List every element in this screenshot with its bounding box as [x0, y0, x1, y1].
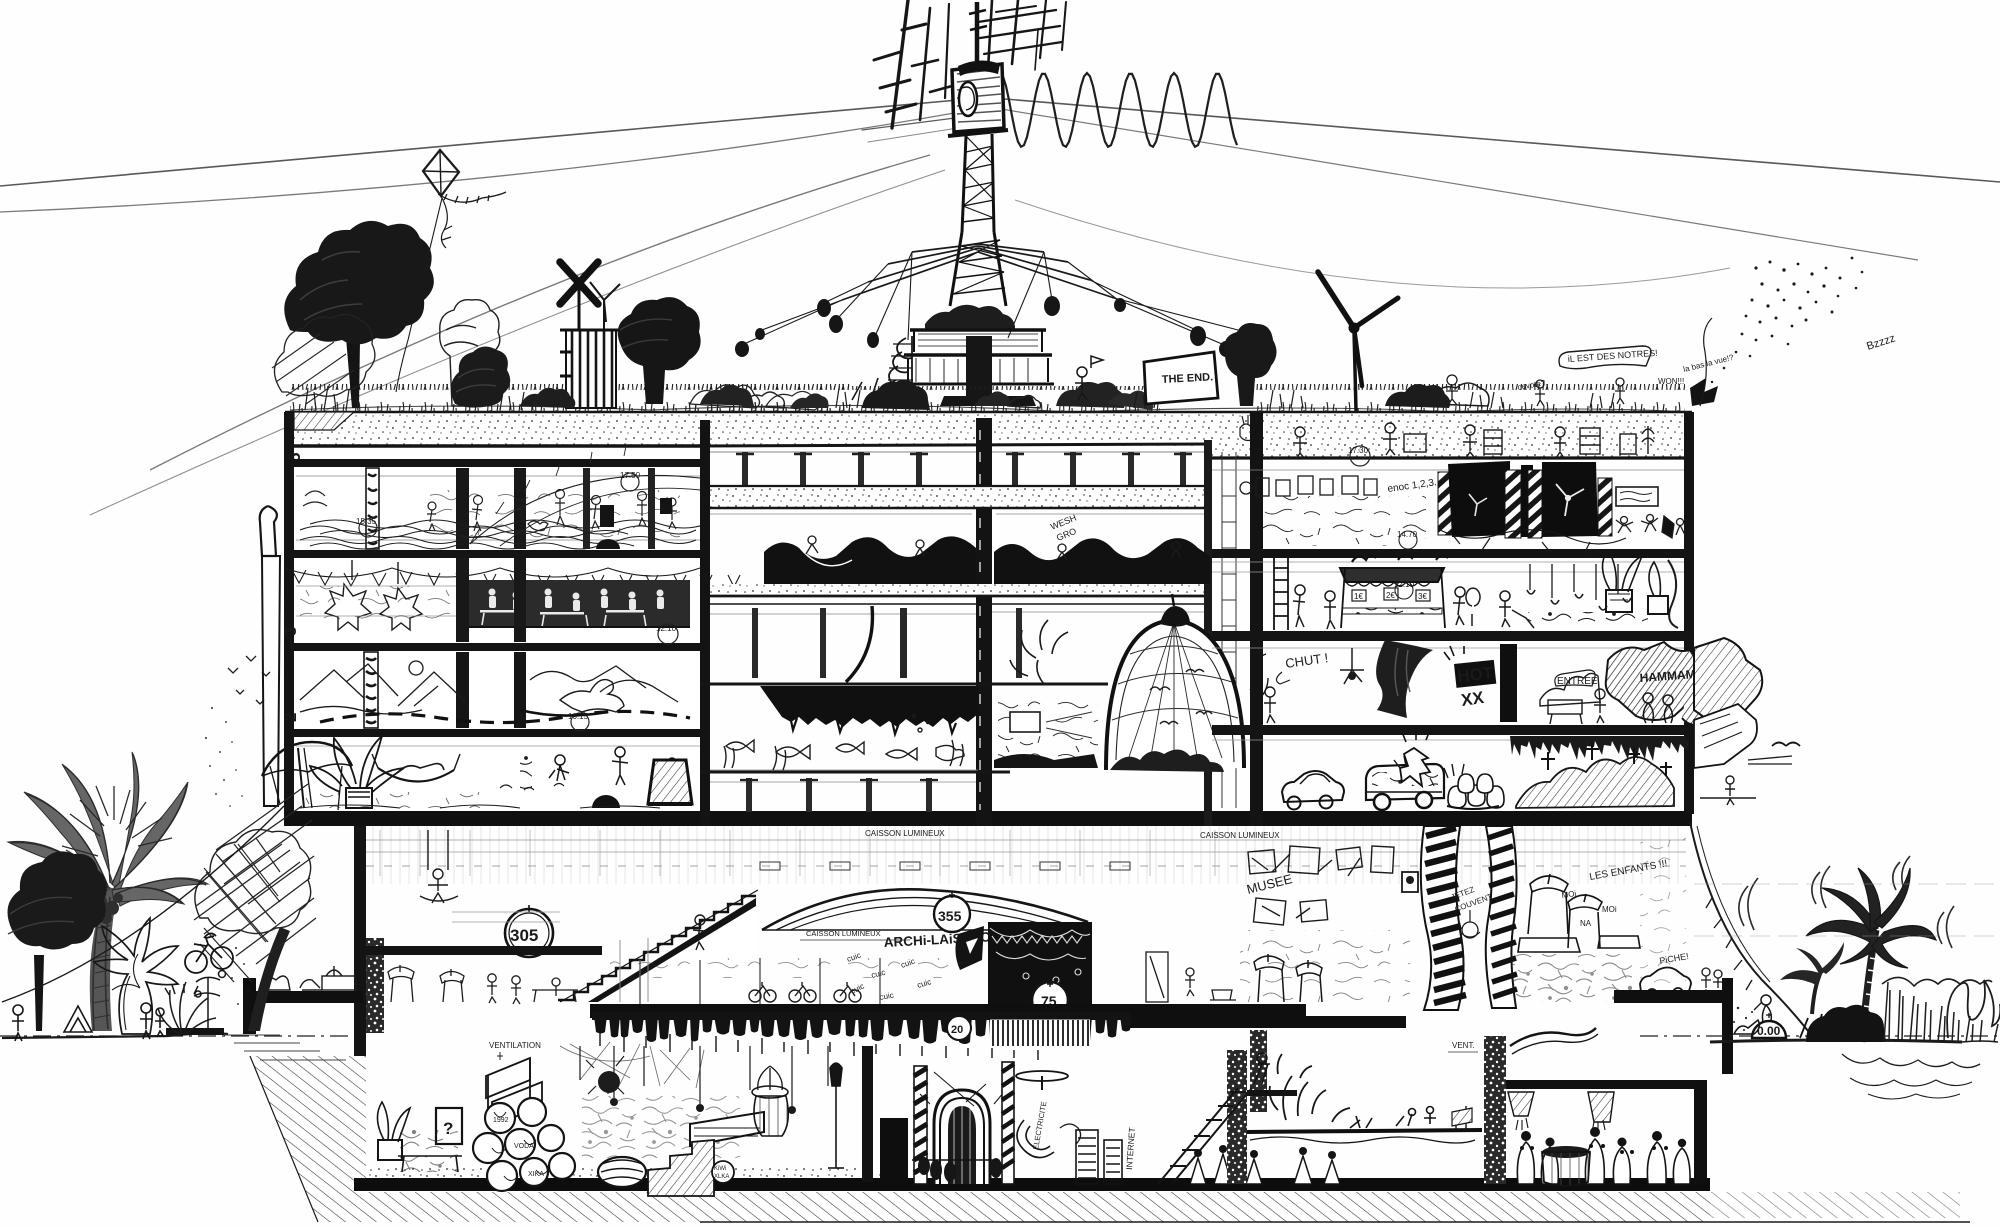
svg-text:15.35: 15.35 [356, 517, 377, 526]
svg-text:CAISSON LUMINEUX: CAISSON LUMINEUX [1200, 831, 1280, 840]
svg-text:ENTREE: ENTREE [1557, 676, 1598, 687]
svg-text:17.50: 17.50 [620, 471, 641, 480]
svg-text:XIKA: XIKA [528, 1171, 544, 1178]
svg-text:WON!!!: WON!!! [1658, 377, 1684, 386]
svg-text:VENT.: VENT. [1452, 1041, 1475, 1050]
svg-text:XLKA: XLKA [714, 1174, 729, 1180]
svg-text:355: 355 [938, 908, 962, 924]
svg-text:17.30: 17.30 [1348, 446, 1369, 455]
svg-text:12.10: 12.10 [1394, 580, 1415, 589]
svg-text:1992: 1992 [493, 1117, 509, 1124]
svg-text:CAISSON LUMINEUX: CAISSON LUMINEUX [806, 929, 881, 938]
svg-text:2€: 2€ [1386, 591, 1395, 600]
svg-text:12.10: 12.10 [656, 624, 677, 633]
svg-text:10.15: 10.15 [568, 712, 589, 721]
svg-text:3: 3 [281, 627, 300, 636]
svg-text:0.00: 0.00 [1757, 1024, 1781, 1038]
svg-text:14.70: 14.70 [1397, 530, 1418, 539]
svg-text:2: 2 [281, 713, 300, 722]
svg-text:NA: NA [1580, 919, 1592, 928]
svg-text:1€: 1€ [1354, 592, 1363, 601]
svg-text:MOi: MOi [1602, 905, 1617, 914]
svg-text:VENTILATION: VENTILATION [489, 1041, 541, 1050]
svg-text:305: 305 [510, 926, 538, 945]
svg-text:KiWi: KiWi [714, 1166, 726, 1172]
svg-text:3€: 3€ [1418, 592, 1427, 601]
svg-text:HOT: HOT [1456, 663, 1494, 686]
svg-text:VODA: VODA [514, 1143, 534, 1150]
svg-text:20: 20 [951, 1024, 963, 1036]
svg-text:CAISSON LUMINEUX: CAISSON LUMINEUX [865, 829, 945, 838]
svg-text:XX: XX [1460, 688, 1486, 710]
